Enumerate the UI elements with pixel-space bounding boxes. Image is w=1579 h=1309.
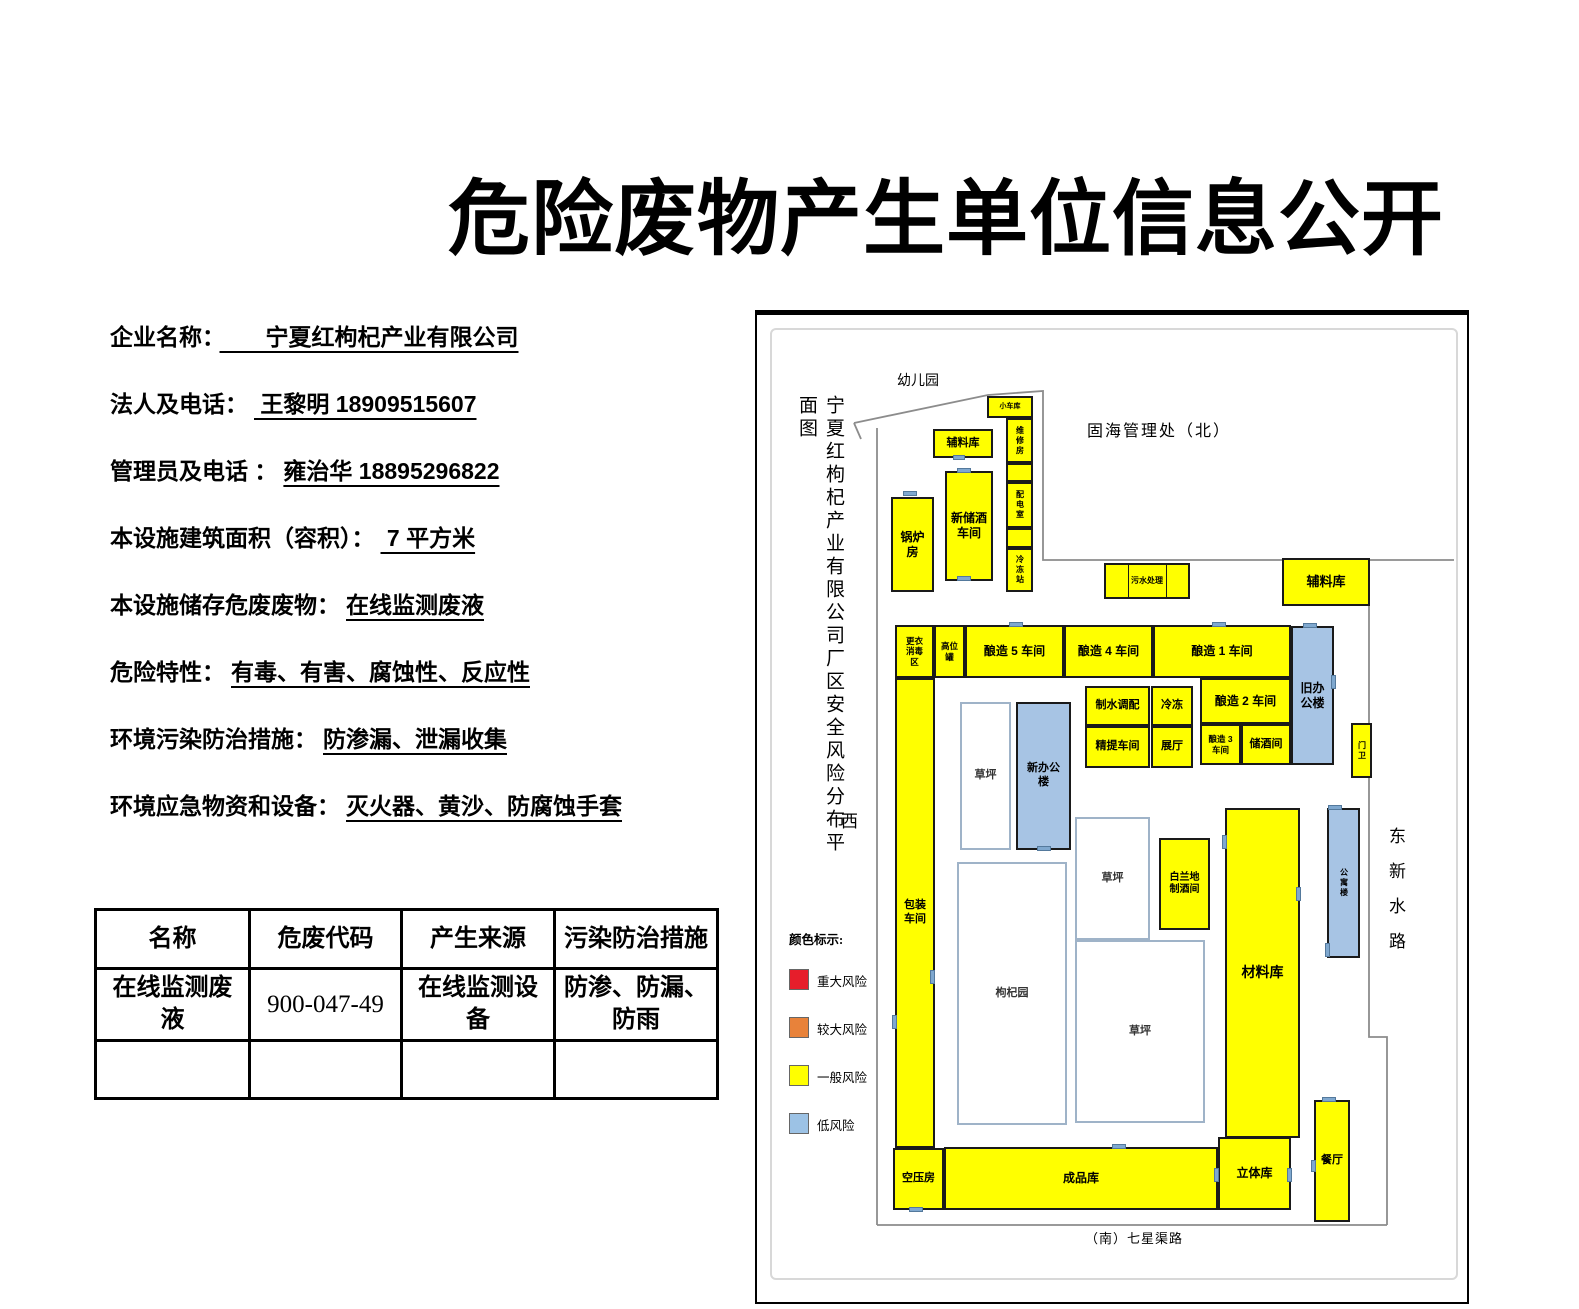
info-label: 管理员及电话 ： bbox=[110, 458, 277, 484]
info-label: 危险特性： bbox=[110, 659, 225, 685]
legend-item-3: 低风险 bbox=[789, 1113, 899, 1135]
door-marker bbox=[1322, 1097, 1336, 1102]
door-marker bbox=[953, 455, 965, 460]
legend-title: 颜色标示: bbox=[789, 929, 843, 948]
info-value: 王黎明 18909515607 bbox=[254, 391, 477, 417]
info-line-1: 法人及电话： 王黎明 18909515607 bbox=[110, 385, 622, 452]
building-section-divider bbox=[1128, 565, 1129, 597]
table-cell: 防渗、防漏、防雨 bbox=[555, 969, 718, 1041]
door-marker bbox=[1037, 846, 1051, 851]
building-cailiaoku: 材料库 bbox=[1225, 808, 1300, 1138]
table-cell: 900-047-49 bbox=[250, 969, 402, 1041]
building-caoping-1: 草坪 bbox=[960, 702, 1011, 850]
building-lengdong: 冷冻 bbox=[1151, 686, 1193, 726]
building-niangzao-5: 酿造 5 车间 bbox=[965, 625, 1064, 678]
building-peidianshi: 配电室 bbox=[1006, 482, 1033, 528]
site-plan-map: 宁夏红枸杞产业有限公司厂区安全风险分布平面图 小车库维修房配电室冷冻站辅料库新储… bbox=[755, 310, 1469, 1304]
info-line-3: 本设施建筑面积（容积）： 7 平方米 bbox=[110, 519, 622, 586]
door-marker bbox=[903, 491, 917, 496]
building-weixiufang: 维修房 bbox=[1006, 418, 1033, 463]
building-bailandi: 白兰地 制酒间 bbox=[1159, 838, 1210, 930]
door-marker bbox=[957, 576, 971, 581]
info-line-2: 管理员及电话 ：雍治华 18895296822 bbox=[110, 452, 622, 519]
building-blank-2 bbox=[1006, 528, 1033, 548]
door-marker bbox=[1212, 622, 1226, 627]
table-cell: 在线监测设备 bbox=[402, 969, 555, 1041]
page-title: 危险废物产生单位信息公开 bbox=[448, 152, 1444, 271]
company-info-section: 企业名称： 宁夏红枸杞产业有限公司法人及电话： 王黎明 18909515607管… bbox=[110, 318, 622, 854]
door-marker bbox=[1303, 623, 1317, 628]
table-header-cell: 产生来源 bbox=[402, 910, 555, 969]
info-value: 灭火器、黄沙、防腐蚀手套 bbox=[346, 793, 622, 819]
table-row: 在线监测废液900-047-49在线监测设备防渗、防漏、防雨 bbox=[96, 969, 718, 1041]
info-label: 环境污染防治措施： bbox=[110, 726, 317, 752]
info-line-4: 本设施储存危废废物：在线监测废液 bbox=[110, 586, 622, 653]
building-fuliaoku-right: 辅料库 bbox=[1282, 558, 1370, 606]
building-litiku: 立体库 bbox=[1218, 1137, 1291, 1210]
building-xinchujiu: 新储酒 车间 bbox=[945, 471, 993, 581]
waste-table: 名称危废代码产生来源污染防治措施在线监测废液900-047-49在线监测设备防渗… bbox=[94, 908, 719, 1100]
door-marker bbox=[1009, 622, 1023, 627]
building-section-divider bbox=[1166, 565, 1167, 597]
info-label: 法人及电话： bbox=[110, 391, 248, 417]
door-marker bbox=[957, 468, 971, 473]
door-marker bbox=[909, 1207, 923, 1212]
door-marker bbox=[1296, 887, 1301, 901]
map-label-south-road: （南）七星渠路 bbox=[1085, 1228, 1183, 1247]
table-cell bbox=[555, 1040, 718, 1098]
building-canting: 餐厅 bbox=[1314, 1100, 1350, 1222]
map-vertical-title: 宁夏红枸杞产业有限公司厂区安全风险分布平面图 bbox=[793, 395, 847, 875]
info-label: 本设施储存危废废物： bbox=[110, 592, 340, 618]
building-blank-1 bbox=[1006, 463, 1033, 482]
door-marker bbox=[1112, 1144, 1126, 1149]
building-baozhuang: 包装 车间 bbox=[895, 678, 935, 1148]
building-jiu-bangonglou: 旧办 公楼 bbox=[1291, 626, 1334, 765]
table-cell bbox=[402, 1040, 555, 1098]
building-kongyafang: 空压房 bbox=[893, 1148, 944, 1210]
building-niangzao-3: 酿造 3 车间 bbox=[1200, 724, 1241, 765]
info-line-7: 环境应急物资和设备：灭火器、黄沙、防腐蚀手套 bbox=[110, 787, 622, 854]
info-label: 本设施建筑面积（容积）： bbox=[110, 525, 375, 551]
table-header-cell: 危废代码 bbox=[250, 910, 402, 969]
building-zhishui-tiaopei: 制水调配 bbox=[1085, 686, 1150, 726]
legend-item-label: 较大风险 bbox=[817, 1019, 867, 1038]
door-marker bbox=[1222, 835, 1227, 849]
info-label: 企业名称： bbox=[110, 324, 214, 350]
info-value: 7 平方米 bbox=[381, 525, 476, 551]
door-marker bbox=[1311, 1160, 1316, 1172]
building-gaoweiguan: 高位 罐 bbox=[934, 625, 965, 678]
building-niangzao-2: 酿造 2 车间 bbox=[1200, 678, 1291, 724]
building-chujiujian: 储酒间 bbox=[1241, 724, 1291, 765]
building-niangzao-4: 酿造 4 车间 bbox=[1064, 625, 1153, 678]
building-menwei: 门卫 bbox=[1351, 723, 1372, 778]
info-line-6: 环境污染防治措施：防渗漏、泄漏收集 bbox=[110, 720, 622, 787]
legend-item-2: 一般风险 bbox=[789, 1065, 899, 1087]
table-row bbox=[96, 1040, 718, 1098]
building-caoping-2: 草坪 bbox=[1075, 817, 1150, 940]
legend-item-1: 较大风险 bbox=[789, 1017, 899, 1039]
table-cell bbox=[250, 1040, 402, 1098]
building-xin-bangonglou: 新办公 楼 bbox=[1016, 702, 1071, 850]
building-wushuichuli: 污水处理 bbox=[1104, 563, 1190, 599]
legend-swatch bbox=[789, 969, 809, 990]
building-niangzao-1: 酿造 1 车间 bbox=[1153, 625, 1291, 678]
legend-item-label: 重大风险 bbox=[817, 971, 867, 990]
building-gongyulou: 公寓楼 bbox=[1327, 808, 1360, 958]
table-cell bbox=[96, 1040, 250, 1098]
info-value: 有毒、有害、腐蚀性、反应性 bbox=[231, 659, 530, 685]
building-jingti-chejian: 精提车间 bbox=[1085, 726, 1150, 768]
door-marker bbox=[1287, 1168, 1292, 1182]
building-xiao-che-ku: 小车库 bbox=[987, 396, 1033, 418]
legend-item-label: 低风险 bbox=[817, 1115, 855, 1134]
map-label-north-neighbor: 固海管理处（北） bbox=[1087, 417, 1231, 441]
building-fuliaoku-left: 辅料库 bbox=[933, 429, 993, 458]
info-value: 防渗漏、泄漏收集 bbox=[323, 726, 507, 752]
info-value: 宁夏红枸杞产业有限公司 bbox=[220, 324, 519, 350]
info-value: 雍治华 18895296822 bbox=[283, 458, 499, 484]
table-cell: 在线监测废液 bbox=[96, 969, 250, 1041]
building-zhanting: 展厅 bbox=[1151, 726, 1193, 768]
table-header-row: 名称危废代码产生来源污染防治措施 bbox=[96, 910, 718, 969]
door-marker bbox=[1331, 675, 1336, 689]
table-header-cell: 名称 bbox=[96, 910, 250, 969]
info-value: 在线监测废液 bbox=[346, 592, 484, 618]
building-lengdongzhan: 冷冻站 bbox=[1006, 548, 1033, 592]
legend-item-0: 重大风险 bbox=[789, 969, 899, 991]
map-label-east-road: 东新水路 bbox=[1383, 827, 1408, 967]
building-caoping-3: 草坪 bbox=[1075, 940, 1205, 1123]
building-gengyi-xiaodu: 更衣 消毒 区 bbox=[895, 625, 934, 678]
waste-table-body: 名称危废代码产生来源污染防治措施在线监测废液900-047-49在线监测设备防渗… bbox=[96, 910, 718, 1099]
legend-swatch bbox=[789, 1065, 809, 1086]
building-gouqiyuan: 枸杞园 bbox=[957, 862, 1067, 1125]
door-marker bbox=[1214, 1168, 1219, 1182]
legend-swatch bbox=[789, 1113, 809, 1134]
building-guolufang: 锅炉 房 bbox=[891, 497, 934, 592]
map-label-kindergarten: 幼儿园 bbox=[897, 370, 939, 390]
building-chengpinku: 成品库 bbox=[944, 1147, 1218, 1210]
table-header-cell: 污染防治措施 bbox=[555, 910, 718, 969]
legend-swatch bbox=[789, 1017, 809, 1038]
door-marker bbox=[1325, 943, 1330, 957]
info-label: 环境应急物资和设备： bbox=[110, 793, 340, 819]
legend-item-label: 一般风险 bbox=[817, 1067, 867, 1086]
map-label-west: 西 bbox=[841, 807, 858, 832]
door-marker bbox=[930, 970, 935, 984]
door-marker bbox=[1328, 805, 1342, 810]
info-line-5: 危险特性：有毒、有害、腐蚀性、反应性 bbox=[110, 653, 622, 720]
info-line-0: 企业名称： 宁夏红枸杞产业有限公司 bbox=[110, 318, 622, 385]
